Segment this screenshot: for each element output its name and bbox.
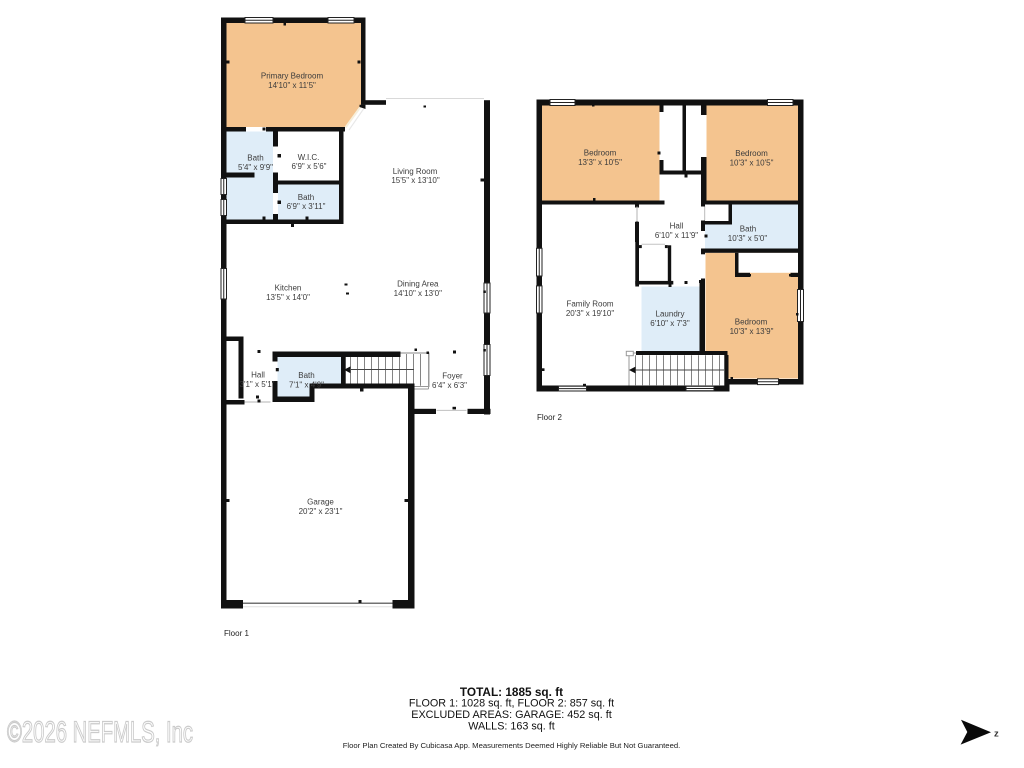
svg-text:7'1" x 4'9": 7'1" x 4'9" — [289, 381, 324, 390]
svg-text:FLOOR 1: 1028 sq. ft, FLOOR 2:: FLOOR 1: 1028 sq. ft, FLOOR 2: 857 sq. f… — [409, 697, 614, 709]
svg-text:Bedroom: Bedroom — [584, 149, 617, 158]
svg-text:EXCLUDED AREAS: GARAGE: 452 sq: EXCLUDED AREAS: GARAGE: 452 sq. ft — [411, 709, 611, 721]
svg-text:13'5" x 14'0": 13'5" x 14'0" — [266, 293, 310, 302]
svg-text:6'10" x 11'9": 6'10" x 11'9" — [655, 231, 698, 240]
svg-text:Foyer: Foyer — [442, 372, 463, 381]
svg-text:20'3" x 19'10": 20'3" x 19'10" — [566, 309, 614, 318]
svg-text:10'3" x 10'5": 10'3" x 10'5" — [730, 159, 774, 168]
svg-text:6'9" x 5'6": 6'9" x 5'6" — [292, 162, 327, 171]
svg-text:15'5" x 13'10": 15'5" x 13'10" — [391, 176, 439, 185]
svg-text:20'2" x 23'1": 20'2" x 23'1" — [299, 507, 343, 516]
svg-text:Family Room: Family Room — [566, 300, 613, 309]
svg-text:Primary Bedroom: Primary Bedroom — [261, 72, 324, 81]
svg-text:Floor 2: Floor 2 — [537, 413, 562, 422]
svg-text:10'3" x 5'0": 10'3" x 5'0" — [728, 234, 768, 243]
svg-text:6'10" x 7'3": 6'10" x 7'3" — [650, 319, 690, 328]
svg-text:10'3" x 13'9": 10'3" x 13'9" — [730, 327, 774, 336]
svg-text:Bath: Bath — [298, 371, 314, 380]
svg-text:Kitchen: Kitchen — [275, 284, 302, 293]
svg-text:Laundry: Laundry — [656, 310, 685, 319]
svg-text:14'10" x 11'5": 14'10" x 11'5" — [268, 81, 316, 90]
svg-text:5'4" x 9'9": 5'4" x 9'9" — [238, 163, 273, 172]
svg-text:WALLS: 163 sq. ft: WALLS: 163 sq. ft — [468, 720, 555, 732]
svg-text:Garage: Garage — [307, 498, 334, 507]
svg-text:Hall: Hall — [251, 371, 265, 380]
svg-text:W.I.C.: W.I.C. — [298, 153, 320, 162]
svg-text:6'9" x 3'11": 6'9" x 3'11" — [287, 202, 326, 211]
svg-text:Bath: Bath — [740, 225, 756, 234]
svg-text:Floor Plan Created By Cubicasa: Floor Plan Created By Cubicasa App. Meas… — [343, 741, 681, 750]
svg-text:Bedroom: Bedroom — [735, 149, 768, 158]
svg-text:Bath: Bath — [247, 154, 263, 163]
svg-text:Bedroom: Bedroom — [735, 318, 768, 327]
svg-text:Dining Area: Dining Area — [397, 280, 439, 289]
svg-text:Floor 1: Floor 1 — [224, 629, 249, 638]
svg-text:Bath: Bath — [298, 193, 314, 202]
svg-text:Living Room: Living Room — [393, 167, 438, 176]
svg-text:13'3" x 10'5": 13'3" x 10'5" — [578, 158, 622, 167]
svg-text:z: z — [994, 728, 999, 739]
svg-text:14'10" x 13'0": 14'10" x 13'0" — [394, 289, 442, 298]
svg-text:6'4" x 6'3": 6'4" x 6'3" — [432, 381, 467, 390]
svg-text:3'1" x 5'1": 3'1" x 5'1" — [240, 380, 275, 389]
svg-text:Hall: Hall — [670, 222, 684, 231]
